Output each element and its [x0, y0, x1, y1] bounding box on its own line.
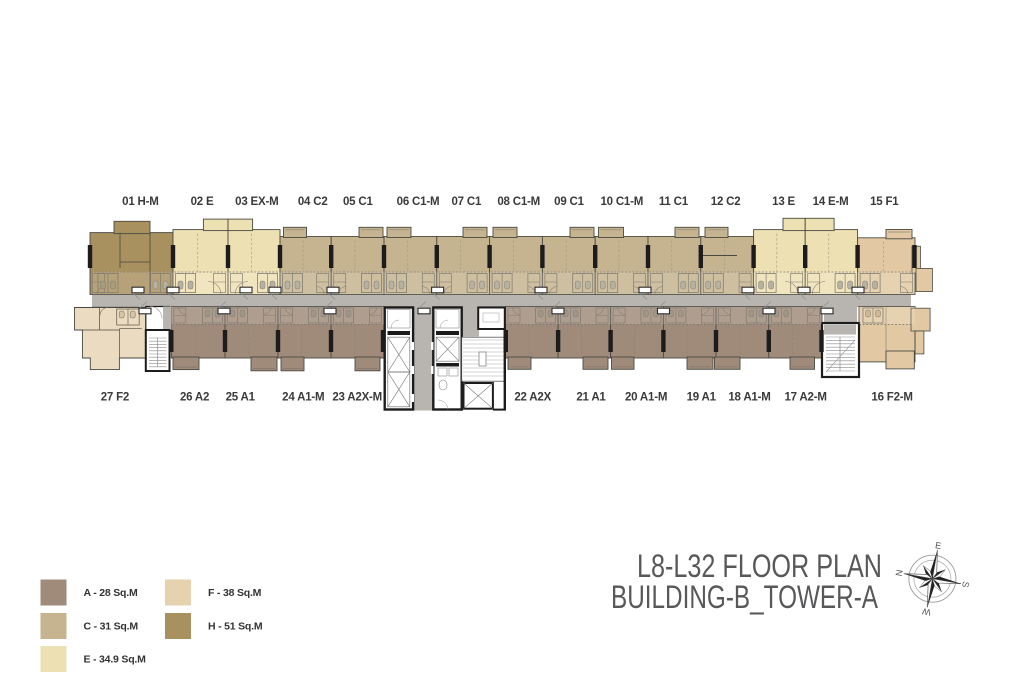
svg-text:N: N — [894, 569, 905, 577]
svg-text:03 EX-M: 03 EX-M — [235, 196, 278, 208]
svg-text:02 E: 02 E — [191, 196, 214, 208]
svg-text:20 A1-M: 20 A1-M — [625, 392, 667, 404]
svg-text:C - 31 Sq.M: C - 31 Sq.M — [84, 621, 139, 633]
svg-text:05 C1: 05 C1 — [343, 196, 373, 208]
svg-text:BUILDING-B_TOWER-A: BUILDING-B_TOWER-A — [611, 579, 878, 615]
svg-text:18 A1-M: 18 A1-M — [728, 392, 770, 404]
svg-text:26 A2: 26 A2 — [180, 392, 209, 404]
svg-text:17 A2-M: 17 A2-M — [784, 392, 826, 404]
svg-text:07 C1: 07 C1 — [451, 196, 481, 208]
svg-text:08 C1-M: 08 C1-M — [497, 196, 540, 208]
svg-text:25 A1: 25 A1 — [226, 392, 256, 404]
svg-text:06 C1-M: 06 C1-M — [397, 196, 440, 208]
svg-text:E - 34.9 Sq.M: E - 34.9 Sq.M — [84, 654, 147, 666]
svg-text:09 C1: 09 C1 — [554, 196, 584, 208]
svg-text:W: W — [921, 606, 932, 617]
svg-text:22 A2X: 22 A2X — [514, 392, 551, 404]
svg-text:16 F2-M: 16 F2-M — [871, 392, 912, 404]
svg-text:11 C1: 11 C1 — [659, 196, 689, 208]
svg-text:10 C1-M: 10 C1-M — [600, 196, 643, 208]
svg-text:21 A1: 21 A1 — [576, 392, 606, 404]
svg-text:23 A2X-M: 23 A2X-M — [332, 392, 382, 404]
svg-text:12 C2: 12 C2 — [711, 196, 741, 208]
svg-text:F - 38 Sq.M: F - 38 Sq.M — [208, 587, 262, 599]
svg-text:14 E-M: 14 E-M — [813, 196, 849, 208]
svg-text:01 H-M: 01 H-M — [122, 196, 159, 208]
svg-text:E: E — [934, 540, 942, 551]
svg-text:24 A1-M: 24 A1-M — [282, 392, 324, 404]
svg-text:A - 28 Sq.M: A - 28 Sq.M — [84, 587, 138, 599]
svg-text:13 E: 13 E — [772, 196, 795, 208]
svg-text:04 C2: 04 C2 — [298, 196, 328, 208]
svg-text:S: S — [960, 581, 971, 589]
svg-text:27 F2: 27 F2 — [101, 392, 129, 404]
svg-text:15 F1: 15 F1 — [870, 196, 899, 208]
svg-text:H - 51 Sq.M: H - 51 Sq.M — [208, 621, 263, 633]
svg-text:19 A1: 19 A1 — [687, 392, 717, 404]
